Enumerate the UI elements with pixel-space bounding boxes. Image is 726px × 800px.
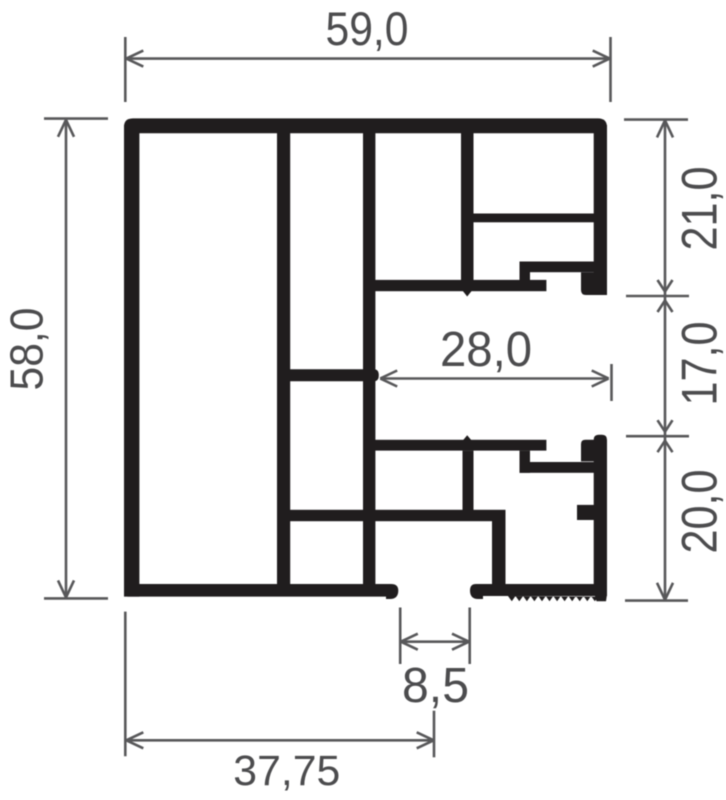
- svg-text:59,0: 59,0: [326, 2, 409, 55]
- svg-text:28,0: 28,0: [440, 323, 532, 377]
- svg-text:17,0: 17,0: [672, 322, 726, 406]
- svg-text:37,75: 37,75: [233, 748, 340, 795]
- svg-text:8,5: 8,5: [402, 659, 469, 713]
- svg-text:58,0: 58,0: [1, 308, 53, 391]
- svg-text:20,0: 20,0: [672, 470, 726, 554]
- svg-text:21,0: 21,0: [672, 167, 726, 251]
